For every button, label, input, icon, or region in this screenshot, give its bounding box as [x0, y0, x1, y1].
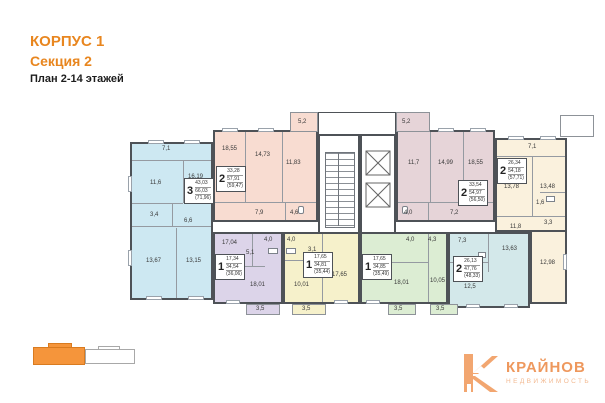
apartment-2room-cream-bottom[interactable] — [530, 232, 567, 304]
room-area: 4,0 — [287, 237, 295, 243]
balcony-cream-top-right — [560, 115, 594, 137]
room-area: 3,5 — [436, 306, 444, 312]
logo-title: КРАЙНОВ — [506, 360, 591, 377]
window-mark — [184, 140, 200, 144]
room-area: 3,5 — [394, 306, 402, 312]
partition — [428, 234, 429, 302]
partition — [215, 202, 316, 203]
window-mark — [334, 300, 348, 304]
room-area: 4,0 — [264, 237, 272, 243]
room-area: 4,6 — [290, 210, 298, 216]
staircase-divider — [338, 152, 339, 226]
room-area: 13,67 — [146, 258, 161, 264]
room-area: 7,1 — [162, 146, 170, 152]
window-mark — [466, 304, 480, 308]
room-area: 12,98 — [540, 260, 555, 266]
apartment-tag-2room-cream: 2 26,3454,18(57,71) — [497, 158, 527, 184]
room-area: 10,05 — [430, 278, 445, 284]
room-area: 3,5 — [256, 306, 264, 312]
window-mark — [226, 300, 240, 304]
bathroom-fixture-icon — [286, 248, 296, 254]
room-area: 14,99 — [438, 160, 453, 166]
room-area: 17,04 — [222, 240, 237, 246]
room-area: 7,2 — [450, 210, 458, 216]
partition — [540, 192, 565, 193]
apartment-tag-2room-mauve: 2 33,5454,97(56,50) — [458, 180, 488, 206]
room-area: 5,2 — [298, 119, 306, 125]
room-area: 18,55 — [222, 146, 237, 152]
window-mark — [188, 296, 204, 300]
room-area: 18,01 — [250, 282, 265, 288]
room-area: 4,0 — [404, 210, 412, 216]
room-area: 14,73 — [255, 152, 270, 158]
room-area: 11,6 — [150, 180, 161, 186]
room-area: 12,5 — [464, 284, 476, 290]
elevator-shaft-icon — [365, 182, 391, 208]
room-area: 13,15 — [186, 258, 201, 264]
apartment-tag-1room-purple: 1 17,3434,54(36,06) — [215, 254, 245, 280]
window-mark — [470, 128, 486, 132]
room-area: 3,5 — [302, 306, 310, 312]
window-mark — [438, 128, 454, 132]
agency-logo: КРАЙНОВ НЕДВИЖИМОСТЬ — [462, 352, 591, 394]
partition — [428, 202, 429, 220]
window-mark — [504, 304, 518, 308]
logo-subtitle: НЕДВИЖИМОСТЬ — [506, 377, 591, 386]
room-area: 13,78 — [504, 184, 519, 190]
window-mark — [128, 176, 132, 192]
floor-plan-page: КОРПУС 1 Секция 2 План 2-14 этажей — [0, 0, 605, 403]
room-area: 10,01 — [294, 282, 309, 288]
partition — [532, 156, 533, 216]
section-title: Секция 2 — [30, 52, 124, 71]
window-mark — [128, 250, 132, 266]
minimap-section-2-highlighted[interactable] — [33, 347, 85, 365]
apartment-tag-1room-yellow: 1 17,6534,81(35,44) — [303, 252, 333, 278]
partition — [172, 203, 173, 226]
logo-k-house-icon — [462, 352, 498, 394]
partition — [497, 216, 565, 217]
building-title: КОРПУС 1 — [30, 32, 124, 52]
partition — [132, 160, 211, 161]
bathroom-fixture-icon — [268, 248, 278, 254]
bathroom-fixture-icon — [298, 206, 304, 214]
room-area: 18,01 — [394, 280, 409, 286]
floors-label: План 2-14 этажей — [30, 71, 124, 88]
apartment-tag-2room-pink: 2 33,2857,91(59,47) — [216, 166, 246, 192]
room-area: 17,65 — [332, 272, 347, 278]
window-mark — [258, 128, 274, 132]
room-area: 7,3 — [458, 238, 466, 244]
room-area: 4,0 — [406, 237, 414, 243]
room-area: 6,6 — [184, 218, 192, 224]
window-mark — [540, 136, 556, 140]
room-area: 5,1 — [246, 250, 254, 256]
partition — [430, 132, 431, 202]
bathroom-fixture-icon — [546, 196, 555, 202]
room-area: 1,6 — [536, 200, 544, 206]
partition — [132, 203, 183, 204]
room-area: 11,8 — [510, 224, 521, 230]
apartment-tag-1room-green: 1 17,6534,85(35,49) — [362, 254, 392, 280]
room-area: 7,1 — [528, 144, 536, 150]
room-area: 11,7 — [408, 160, 419, 166]
partition — [497, 156, 565, 157]
partition — [282, 132, 283, 202]
window-mark — [146, 296, 162, 300]
apartment-tag-2room-blue: 2 26,1347,76(48,33) — [453, 256, 483, 282]
header: КОРПУС 1 Секция 2 План 2-14 этажей — [30, 32, 124, 88]
window-mark — [508, 136, 524, 140]
room-area: 3,3 — [544, 220, 552, 226]
window-mark — [366, 300, 380, 304]
partition — [176, 228, 177, 298]
room-area: 3,4 — [150, 212, 158, 218]
room-area: 13,63 — [502, 246, 517, 252]
room-area: 4,3 — [428, 237, 436, 243]
room-area: 5,2 — [402, 119, 410, 125]
partition — [285, 202, 286, 220]
entrance-vestibule — [318, 112, 396, 135]
room-area: 7,9 — [255, 210, 263, 216]
minimap-section-1-outline[interactable] — [85, 349, 135, 364]
room-area: 13,48 — [540, 184, 555, 190]
apartment-2room-mauve[interactable] — [396, 130, 495, 222]
staircase-icon — [325, 152, 355, 228]
elevator-shaft-icon — [365, 150, 391, 176]
window-mark — [148, 140, 164, 144]
partition — [132, 226, 211, 227]
window-mark — [222, 128, 238, 132]
partition — [488, 234, 489, 272]
room-area: 11,83 — [286, 160, 301, 166]
apartment-tag-3room: 3 43,0366,03(71,96) — [184, 178, 214, 204]
room-area: 18,55 — [468, 160, 483, 166]
window-mark — [563, 254, 567, 270]
